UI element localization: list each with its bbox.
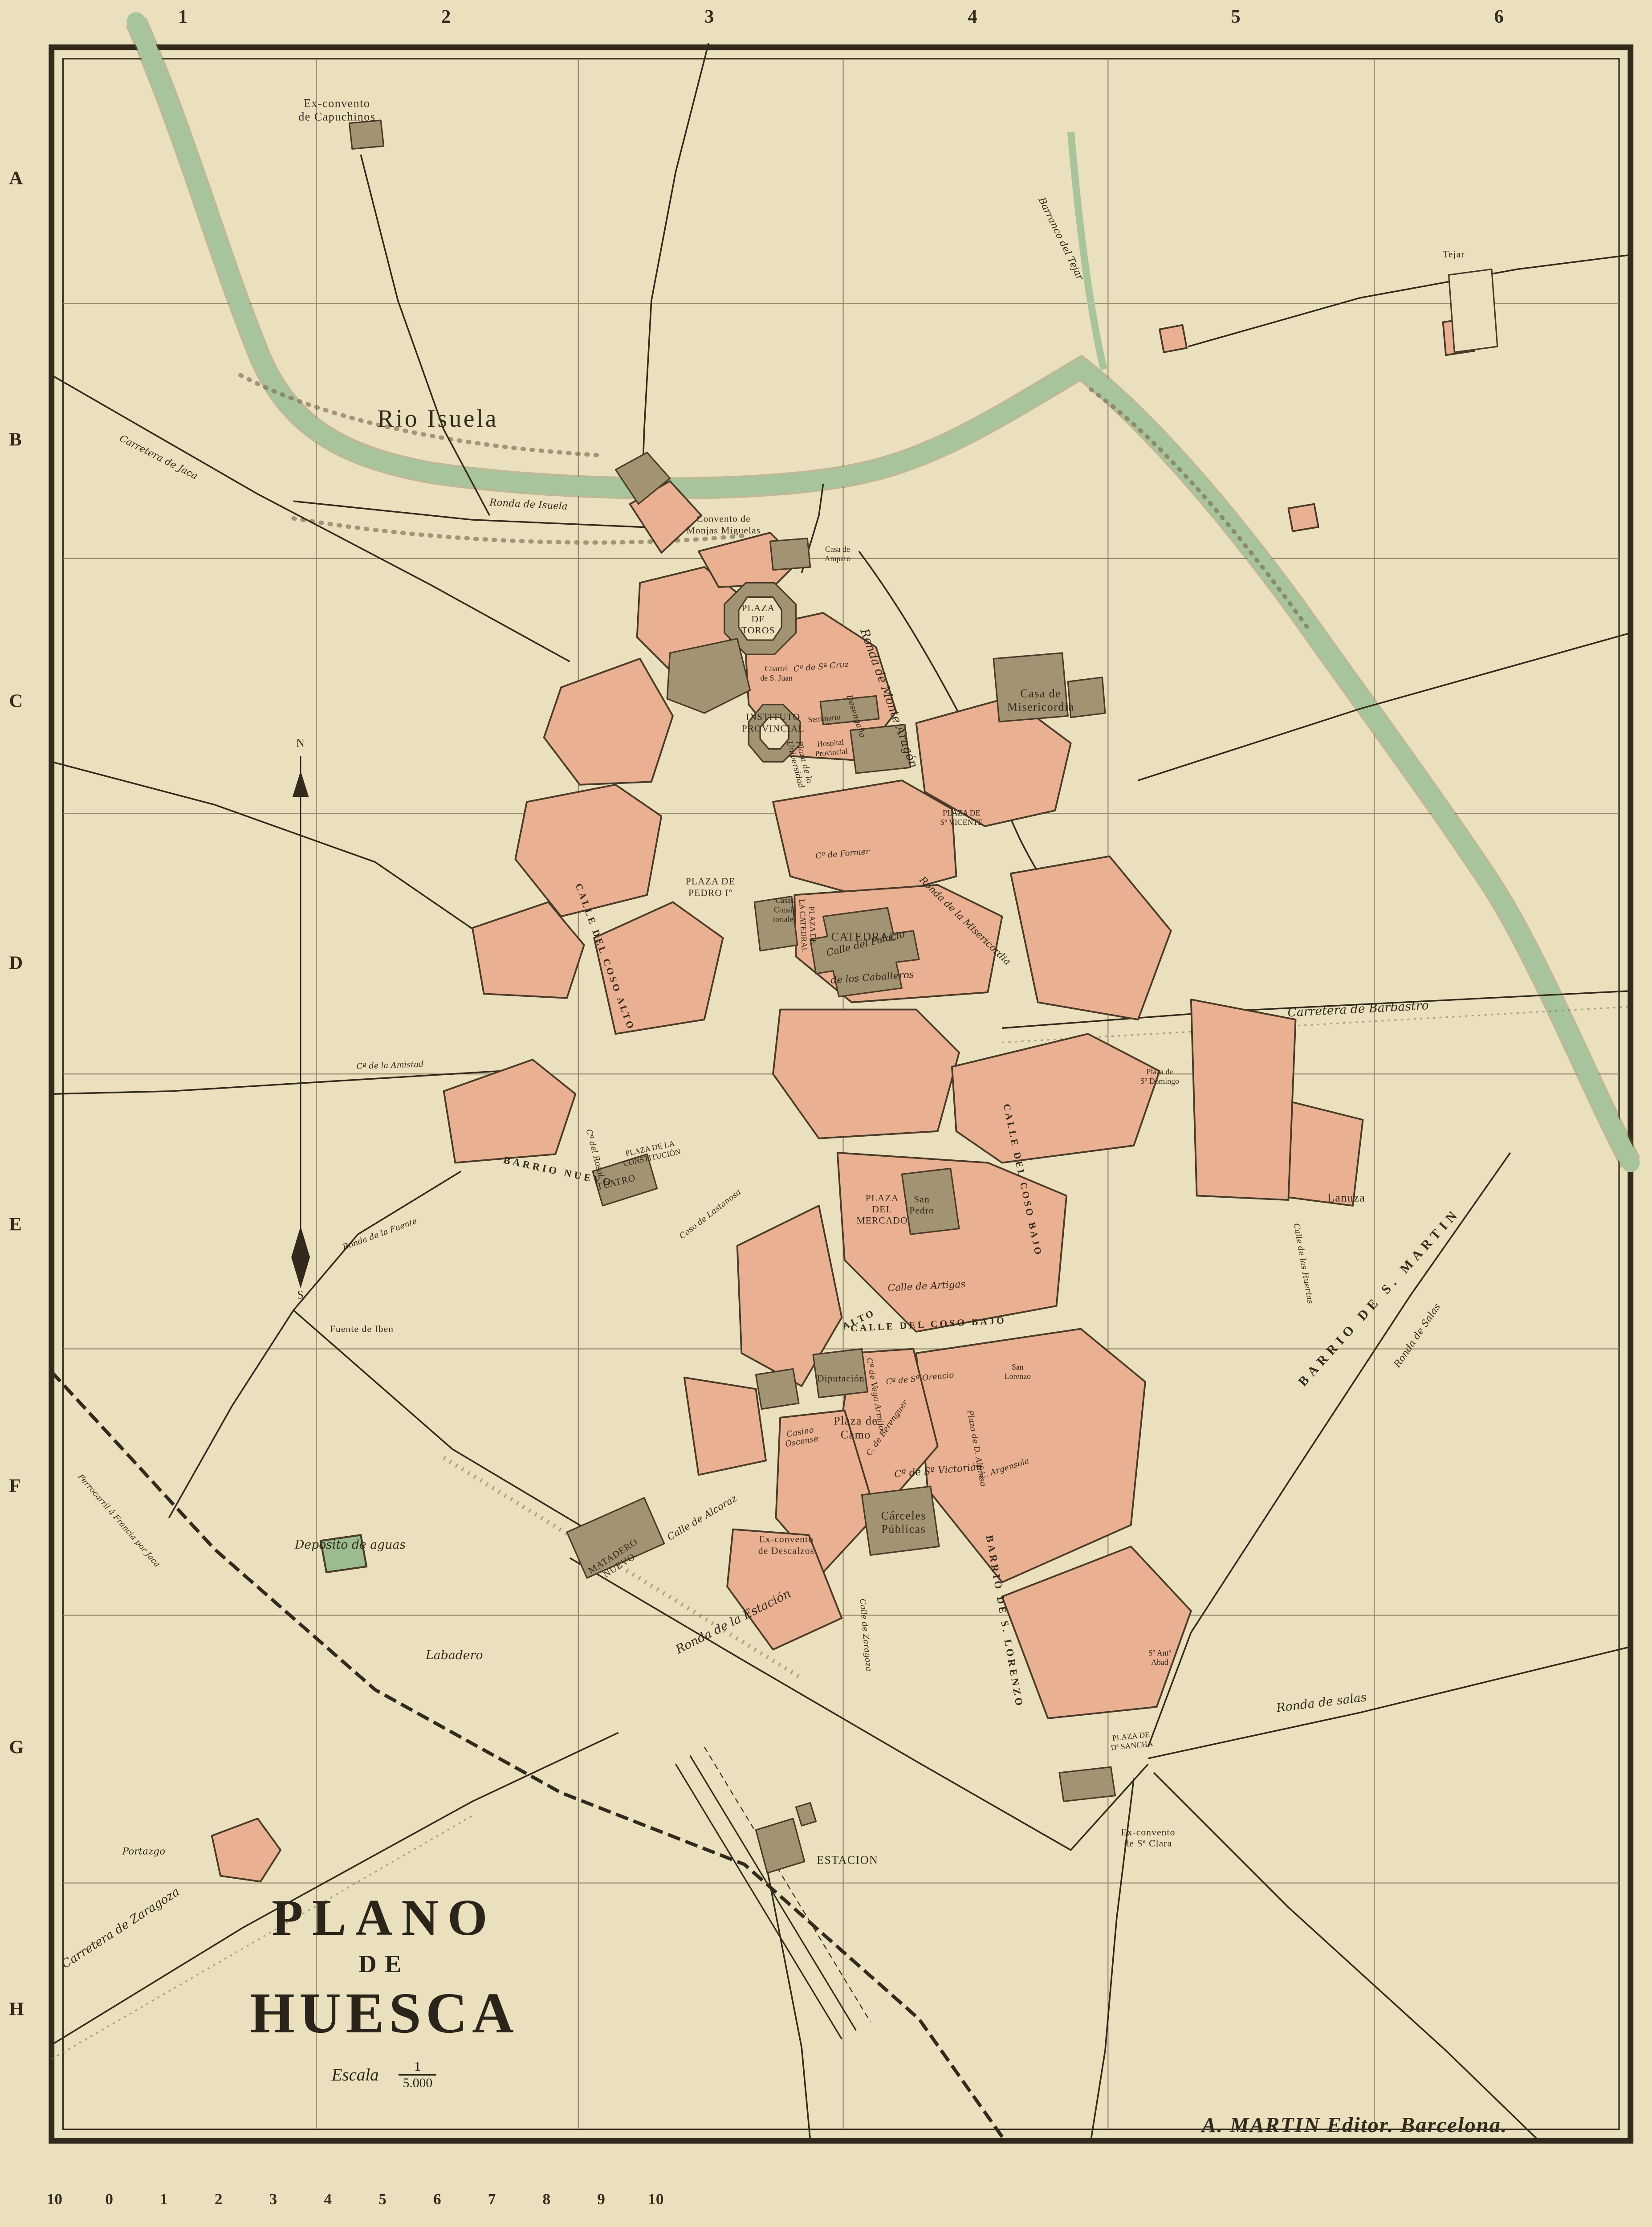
scale-fraction-denominator: 5.000 xyxy=(399,2074,436,2091)
building-misericordia xyxy=(993,653,1068,722)
scale-number-1: 0 xyxy=(105,2190,113,2208)
grid-row-C: C xyxy=(9,690,23,712)
grid-row-A: A xyxy=(9,167,23,189)
plaza-de-toros-arena xyxy=(739,597,781,640)
map-sheet: Ex-convento de CapuchinosTejarBarranco d… xyxy=(0,0,1652,2227)
scale-number-4: 3 xyxy=(269,2190,277,2208)
grid-row-B: B xyxy=(9,429,21,451)
deposito-de-aguas-basin xyxy=(321,1535,366,1572)
building-hospital xyxy=(850,725,911,773)
building-estacion-shed xyxy=(796,1803,816,1826)
building-teatro xyxy=(593,1154,657,1206)
grid-column-4: 4 xyxy=(968,6,977,28)
scale-number-0: 10 xyxy=(47,2190,62,2208)
scale-bar-numbers: 10012345678910 xyxy=(54,2190,655,2213)
building-casino xyxy=(756,1369,798,1409)
building-misericordia-2 xyxy=(1068,677,1105,718)
instituto-court xyxy=(760,718,789,749)
grid-row-E: E xyxy=(9,1213,21,1235)
building-casas-consistoriales xyxy=(754,897,797,951)
compass-arrow-south xyxy=(292,1228,309,1286)
map-title-plano: PLANO xyxy=(207,1892,562,1943)
grid-row-F: F xyxy=(9,1475,20,1497)
scale-number-10: 9 xyxy=(597,2190,605,2208)
grid-column-6: 6 xyxy=(1494,6,1503,28)
map-title-de: DE xyxy=(207,1952,562,1977)
grid-column-3: 3 xyxy=(704,6,714,28)
building-estacion xyxy=(756,1819,804,1873)
graphic-scale-bar: 10012345678910 xyxy=(54,2190,655,2227)
building-amparo xyxy=(770,538,810,570)
building-santa-clara xyxy=(1059,1767,1115,1801)
scale-number-9: 8 xyxy=(543,2190,551,2208)
building-tejar xyxy=(1449,269,1497,352)
map-title-huesca: HUESCA xyxy=(207,1985,562,2043)
building-matadero xyxy=(567,1498,664,1578)
building-capuchinos xyxy=(349,120,383,149)
grid-column-5: 5 xyxy=(1231,6,1240,28)
building-carceles xyxy=(862,1486,939,1555)
editor-imprint: A. MARTIN Editor. Barcelona. xyxy=(1090,2113,1619,2137)
compass-needle xyxy=(292,756,309,1286)
escala-label: Escala xyxy=(332,2065,379,2085)
scale-number-11: 10 xyxy=(648,2190,663,2208)
building-san-pedro xyxy=(902,1168,959,1234)
scale-number-2: 1 xyxy=(160,2190,168,2208)
grid-row-H: H xyxy=(9,1998,24,2020)
scale-fraction: 1 5.000 xyxy=(399,2059,436,2091)
scale-fraction-numerator: 1 xyxy=(414,2060,421,2074)
scale-number-6: 5 xyxy=(378,2190,387,2208)
title-block: PLANO DE HUESCA Escala 1 5.000 xyxy=(207,1892,562,2091)
scale-number-7: 6 xyxy=(433,2190,441,2208)
scale-number-3: 2 xyxy=(215,2190,223,2208)
building-seminario xyxy=(820,696,879,724)
scale-number-8: 7 xyxy=(488,2190,496,2208)
grid-row-G: G xyxy=(9,1737,24,1758)
scale-statement: Escala 1 5.000 xyxy=(207,2059,562,2091)
grid-row-D: D xyxy=(9,952,23,974)
barranco-del-tejar-stream xyxy=(1071,132,1104,370)
building-diputacion xyxy=(813,1349,867,1397)
scale-number-5: 4 xyxy=(324,2190,332,2208)
grid-column-2: 2 xyxy=(441,6,451,28)
compass-arrow-north xyxy=(293,773,308,796)
grid-column-1: 1 xyxy=(178,6,187,28)
